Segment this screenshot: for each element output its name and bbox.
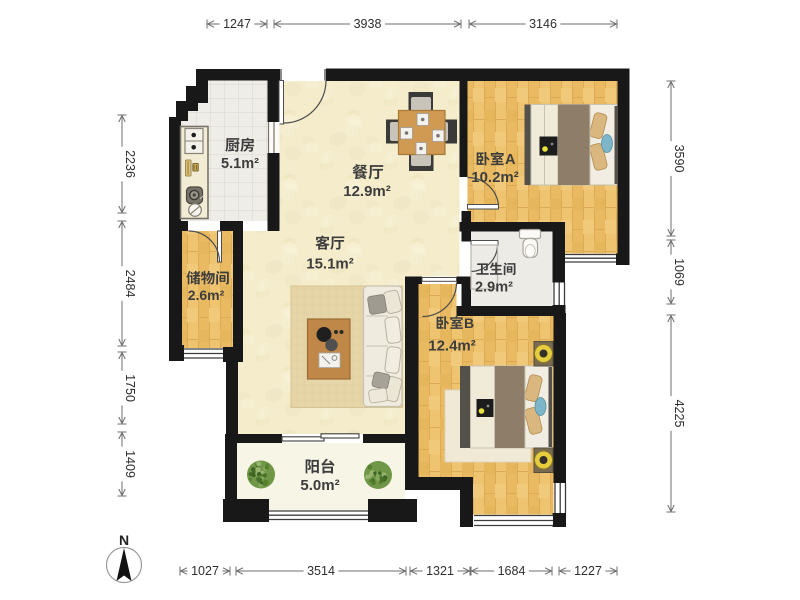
svg-text:2236: 2236 xyxy=(123,150,137,178)
svg-text:3146: 3146 xyxy=(529,17,557,31)
svg-text:1069: 1069 xyxy=(672,258,686,286)
svg-text:1321: 1321 xyxy=(426,564,454,578)
svg-text:1227: 1227 xyxy=(574,564,602,578)
svg-text:3514: 3514 xyxy=(307,564,335,578)
svg-text:3938: 3938 xyxy=(354,17,382,31)
svg-text:2484: 2484 xyxy=(123,270,137,298)
svg-text:15.1m²: 15.1m² xyxy=(306,256,354,273)
svg-text:1684: 1684 xyxy=(498,564,526,578)
svg-text:1750: 1750 xyxy=(123,374,137,402)
svg-text:2.9m²: 2.9m² xyxy=(475,280,513,296)
svg-text:10.2m²: 10.2m² xyxy=(471,169,519,186)
svg-text:B: B xyxy=(464,315,474,331)
svg-text:N: N xyxy=(119,532,129,548)
svg-text:1247: 1247 xyxy=(223,17,251,31)
svg-text:1027: 1027 xyxy=(191,564,219,578)
svg-text:5.0m²: 5.0m² xyxy=(300,477,339,494)
svg-text:12.4m²: 12.4m² xyxy=(428,338,476,355)
svg-text:5.1m²: 5.1m² xyxy=(221,156,259,172)
svg-text:4225: 4225 xyxy=(672,400,686,428)
svg-text:2.6m²: 2.6m² xyxy=(188,287,225,303)
svg-text:3590: 3590 xyxy=(672,145,686,173)
svg-text:1409: 1409 xyxy=(123,450,137,478)
svg-text:A: A xyxy=(505,152,516,168)
svg-text:12.9m²: 12.9m² xyxy=(343,183,391,200)
